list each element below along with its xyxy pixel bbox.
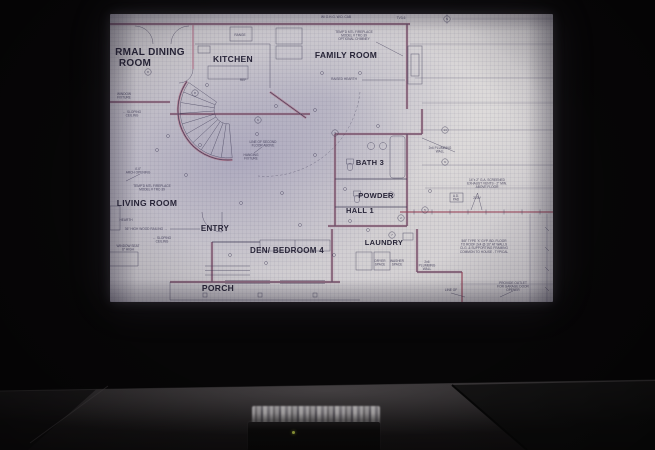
plan-note: TV3-6 — [397, 16, 406, 20]
room-label: BATH 3 — [356, 158, 384, 167]
plan-note: DRYERSPACE — [374, 259, 386, 267]
room-label: DEN/ BEDROOM 4 — [250, 246, 324, 255]
plan-note: 4'-0"ARCH OPENING — [126, 167, 151, 175]
plan-note: TEMP'D MTL FIREPLACEMODEL # TRC-39 — [133, 184, 171, 192]
plan-note: TEMP'D MTL FIREPLACEMODEL # TRC-39OPTION… — [335, 30, 373, 41]
plan-note: 14"x 2" G.A. SCREENEDEXHAUST VENTS - 2" … — [467, 178, 507, 189]
room-label: POWDER — [358, 191, 394, 200]
table-edge — [0, 380, 655, 391]
grid-bubble-number: 8 — [147, 70, 149, 74]
staircase — [180, 83, 232, 158]
plan-note: W/ O.H.G. W.D. CAB — [321, 15, 351, 19]
plan-note: WASHERSPACE — [390, 259, 405, 267]
plan-note: RAISED HEARTH — [331, 77, 357, 81]
photo-scene: RMAL DININGROOMKITCHENFAMILY ROOMLIVING … — [0, 0, 655, 450]
table-seam-right — [452, 385, 527, 450]
grid-bubble-number: 2 — [400, 216, 402, 220]
plan-note: A.D.PAD — [453, 194, 460, 202]
grid-bubble-number: 9 — [444, 160, 446, 164]
grid-bubble-number: 7 — [391, 233, 393, 237]
grid-bubble-number: 8 — [194, 91, 196, 95]
plan-note: ← SLOPINGCEILING — [153, 236, 172, 244]
room-labels: RMAL DININGROOMKITCHENFAMILY ROOMLIVING … — [115, 47, 403, 293]
room-label: PORCH — [202, 283, 234, 293]
plan-note: 2x6PLUMBINGWALL — [419, 260, 436, 271]
room-label: LAUNDRY — [365, 238, 404, 247]
plan-note: HANGINGFIXTURE — [244, 153, 259, 161]
second-floor-line — [258, 92, 360, 176]
plan-note: HEARTH — [119, 218, 133, 222]
plan-note: 5/8" TYPE 'X' GYP. BD. FLOORTO ROOF 2x4 … — [460, 239, 509, 254]
plan-note: 2x6 PLUMBINGWALL — [429, 146, 452, 154]
room-label: KITCHEN — [213, 54, 253, 64]
plan-grid-lines — [410, 14, 553, 302]
plan-note: LINE OF — [445, 288, 457, 292]
table-dark-left — [0, 386, 100, 450]
plan-note: RANGE — [234, 33, 245, 37]
table-dark-right — [452, 381, 655, 450]
room-label: FAMILY ROOM — [315, 50, 377, 60]
plan-note: PROVIDE OUTLETFOR GARAGE DOOROPENER — [497, 281, 529, 292]
power-led-icon — [292, 431, 295, 434]
plan-note: 220V — [473, 196, 481, 200]
grid-bubbles: 88639527N14 — [145, 16, 450, 238]
room-label: LIVING ROOM — [117, 198, 177, 208]
room-label: ENTRY — [201, 224, 230, 233]
grid-bubble-number: 14 — [443, 128, 447, 132]
projection-screen: RMAL DININGROOMKITCHENFAMILY ROOMLIVING … — [110, 14, 553, 302]
grid-bubble-number: N — [446, 17, 448, 21]
floor-plan-drawing: RMAL DININGROOMKITCHENFAMILY ROOMLIVING … — [110, 14, 553, 302]
room-label: RMAL DINING — [115, 47, 185, 58]
plan-note: REF — [240, 78, 246, 82]
grid-bubble-number: 6 — [257, 118, 259, 122]
table-seam-left — [30, 386, 108, 443]
plan-note: LINE OF SECONDFLOOR ABOVE — [250, 140, 278, 148]
plan-note: WINDOW SEAT6" HIGH — [117, 244, 140, 252]
room-label: HALL 1 — [346, 206, 374, 215]
plan-note: 36" HIGH WOOD RAILING → — [125, 227, 167, 231]
plan-fixtures — [110, 26, 549, 300]
plan-note: ← SLOPINGCEILING — [123, 110, 142, 118]
plan-note: WINDOWFIXTURE — [117, 92, 131, 100]
media-device — [248, 422, 380, 450]
room-label: ROOM — [119, 58, 151, 69]
